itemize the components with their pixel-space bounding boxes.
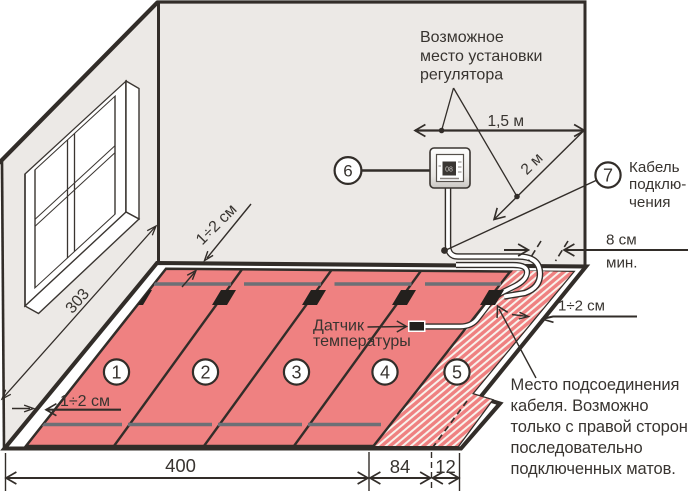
svg-text:84: 84 [390,456,411,477]
svg-text:место установки: место установки [420,48,542,65]
svg-text:5: 5 [452,363,462,383]
svg-text:только с правой стороны: только с правой стороны [511,418,688,436]
svg-text:температуры: температуры [313,333,411,350]
svg-text:1÷2 см: 1÷2 см [558,298,605,315]
svg-text:12: 12 [435,456,456,477]
svg-text:400: 400 [165,455,196,476]
svg-text:8 см: 8 см [606,232,637,249]
svg-text:4: 4 [380,363,390,383]
svg-text:Датчик: Датчик [313,318,365,335]
svg-text:Место подсоединения: Место подсоединения [511,376,680,394]
svg-text:08: 08 [445,167,453,174]
svg-text:подключенных матов.: подключенных матов. [511,460,676,478]
svg-text:регулятора: регулятора [420,67,503,84]
svg-text:подклю-: подклю- [629,176,686,193]
svg-text:Возможное: Возможное [420,29,504,46]
svg-text:мин.: мин. [606,255,638,272]
svg-text:3: 3 [291,363,301,383]
svg-text:кабеля. Возможно: кабеля. Возможно [511,397,649,415]
svg-text:6: 6 [343,162,352,181]
svg-text:7: 7 [603,166,613,186]
svg-text:Кабель: Кабель [629,159,680,176]
svg-text:1: 1 [111,363,121,383]
svg-text:последовательно: последовательно [511,439,643,457]
svg-text:чения: чения [629,194,670,211]
svg-text:2: 2 [200,363,210,383]
svg-text:1÷2 см: 1÷2 см [60,393,110,410]
svg-text:1,5 м: 1,5 м [488,113,525,130]
